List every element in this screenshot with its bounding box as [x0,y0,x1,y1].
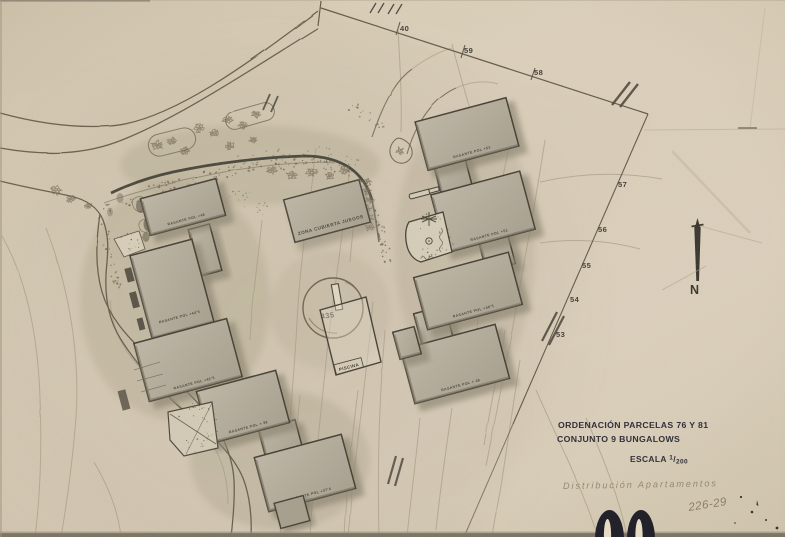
svg-text:CONJUNTO 9 BUNGALOWS: CONJUNTO 9 BUNGALOWS [557,434,680,444]
svg-text:ORDENACIÓN PARCELAS 76 Y 81: ORDENACIÓN PARCELAS 76 Y 81 [558,419,708,430]
